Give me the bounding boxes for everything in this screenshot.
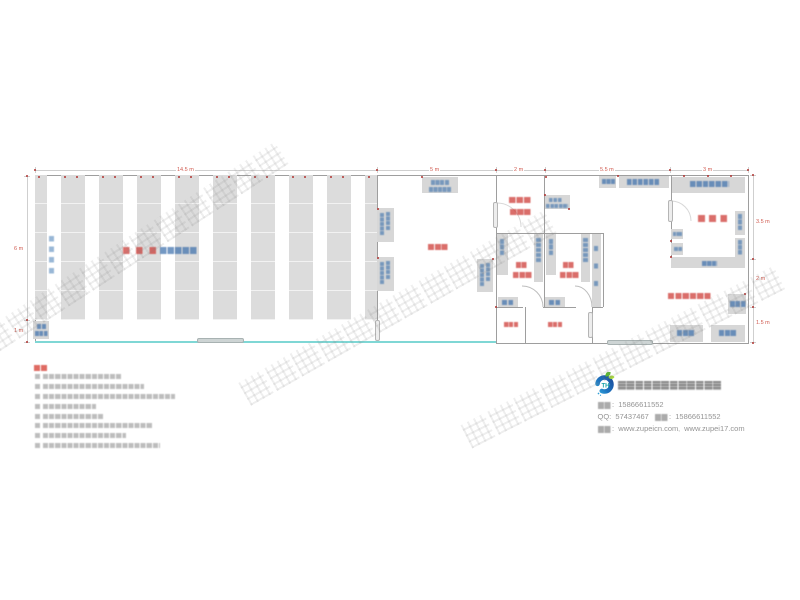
svg-text:TH: TH [602,384,610,390]
